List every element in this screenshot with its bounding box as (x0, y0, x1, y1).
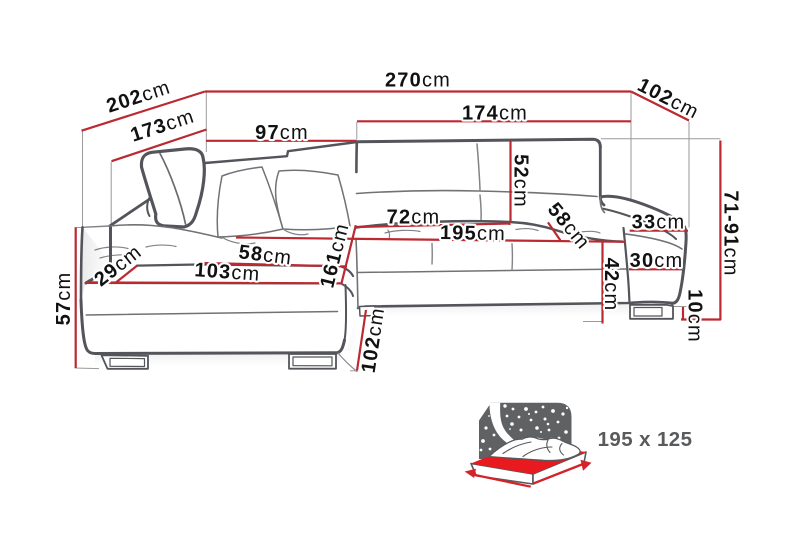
svg-text:195 x 125: 195 x 125 (598, 428, 693, 451)
svg-text:72cm: 72cm (387, 206, 441, 228)
svg-text:42cm: 42cm (600, 258, 622, 312)
svg-text:57cm: 57cm (53, 272, 75, 326)
svg-text:195cm: 195cm (440, 222, 506, 245)
svg-text:71-91cm: 71-91cm (720, 190, 742, 276)
svg-text:270cm: 270cm (385, 70, 451, 92)
svg-text:10cm: 10cm (684, 289, 706, 343)
svg-text:52cm: 52cm (510, 154, 532, 208)
svg-text:103cm: 103cm (194, 259, 261, 286)
svg-text:174cm: 174cm (462, 102, 528, 124)
svg-text:30cm: 30cm (630, 250, 684, 272)
svg-text:97cm: 97cm (255, 122, 309, 144)
svg-text:33cm: 33cm (632, 212, 686, 234)
